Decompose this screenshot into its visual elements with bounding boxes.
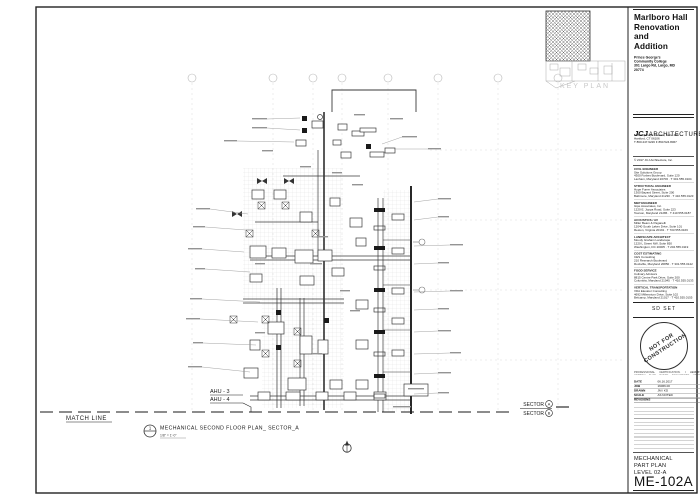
revision-lines (634, 404, 694, 451)
sheet-title-line: MECHANICAL (634, 456, 694, 463)
project-title: Marlboro Hall Renovation and Addition (634, 13, 694, 52)
consultant-entry: MEP ENGINEERGipe Associates, Inc.1220 E.… (634, 202, 694, 217)
consultant-entry: COST ESTIMATINGCES Consulting210 Researc… (634, 253, 694, 268)
sheet-title-line: PART PLAN (634, 463, 694, 470)
plan-caption: 1 MECHANICAL SECOND FLOOR PLAN_ SECTOR_A… (144, 425, 299, 438)
title-block: Marlboro Hall Renovation and Addition Pr… (630, 0, 697, 500)
key-plan-label: KEY PLAN (560, 83, 610, 90)
sector-a-label: SECTOR (523, 402, 544, 408)
divider (633, 165, 694, 166)
divider (633, 490, 694, 491)
ahu-callout: AHU - 3 AHU - 4 (210, 389, 251, 412)
client-info: Prince George's Community College 301 La… (634, 56, 700, 73)
divider (633, 114, 694, 115)
divider (633, 117, 694, 118)
project-title-line: Renovation and (634, 23, 694, 42)
consultant-entry: VERTICAL TRANSPORTATIONVDA Elevator Cons… (634, 287, 694, 301)
not-for-construction-stamp: NOT FOR CONSTRUCTION (640, 322, 688, 370)
match-line-label: MATCH LINE (66, 416, 107, 422)
key-plan: KEY PLAN (546, 11, 625, 90)
sector-b-label: SECTOR (523, 411, 544, 417)
ahu-3-label: AHU - 3 (210, 389, 230, 395)
consultant-entry: STRUCTURAL ENGINEERHope Furrer Associate… (634, 185, 694, 200)
detail-number: 1 (149, 426, 152, 431)
consultant-entry: ACOUSTICS / AVMiller Beam & Paganelli120… (634, 219, 694, 234)
divider (633, 317, 694, 318)
match-line: MATCH LINE (40, 407, 574, 422)
certification-note: PROFESSIONAL CERTIFICATION. I HEREBY CER… (634, 371, 700, 375)
copyright-note: © 2017 JCJ Architecture, Inc. (634, 159, 700, 162)
north-arrow-icon (343, 441, 351, 453)
key-plan-highlight-area (546, 11, 590, 61)
consultants-list: CIVIL ENGINEERSite Solutions Group4300 F… (634, 168, 694, 301)
consultant-entry: FOOD SERVICECulinary Advisors8815 Centre… (634, 270, 694, 285)
client-line: 20774 (634, 69, 700, 73)
plan-caption-title: MECHANICAL SECOND FLOOR PLAN_ SECTOR_A (160, 426, 299, 432)
firm-address-line: T 860.247.9226 F 860.524.8067 (634, 141, 700, 144)
title-fields: DATE06.16.2017JOB16066.00DRAWNJM / KDSCA… (634, 380, 700, 398)
consultant-entry: LANDSCAPE ARCHITECTMoody Graham Landscap… (634, 236, 694, 251)
sheet-number: ME-102A (634, 474, 694, 489)
sector-b-letter: B (548, 412, 551, 416)
consultants-section: CIVIL ENGINEERSite Solutions Group4300 F… (634, 168, 694, 301)
project-title-line: Marlboro Hall (634, 13, 694, 23)
sheet-canvas: KEY PLAN (0, 0, 700, 500)
consultant-entry: CIVIL ENGINEERSite Solutions Group4300 F… (634, 168, 694, 183)
issue-set-label: SD SET (634, 306, 694, 312)
divider (633, 156, 694, 157)
divider (633, 452, 694, 453)
divider (633, 302, 694, 303)
plan-caption-scale: 1/8" = 1'-0" (160, 434, 177, 438)
floor-plan (230, 90, 428, 414)
project-title-line: Addition (634, 42, 694, 52)
drawing-sheet: { "title_block": { "project_title_lines"… (0, 0, 700, 500)
revisions-label: REVISIONS (634, 398, 700, 402)
ahu-4-label: AHU - 4 (210, 397, 230, 403)
divider (633, 9, 694, 10)
sector-a-letter: A (548, 403, 551, 407)
sector-labels: SECTOR SECTOR A B (520, 401, 552, 417)
firm-address: 120 Huyshope Avenue, Suite 400 Hartford,… (634, 134, 700, 144)
